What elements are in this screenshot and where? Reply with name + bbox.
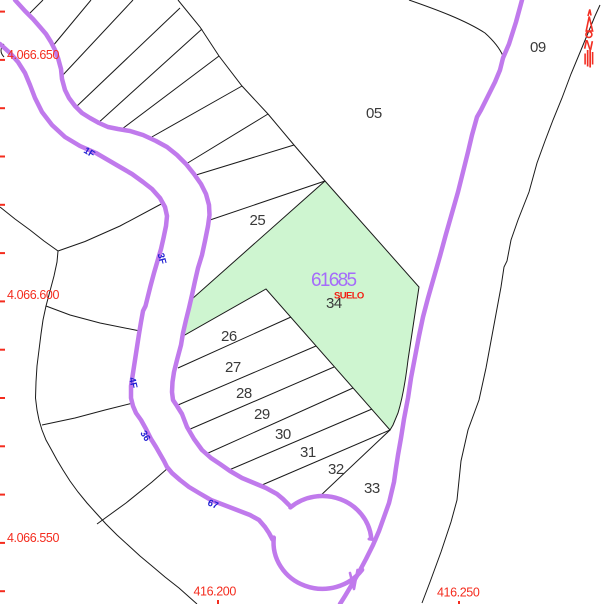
svg-text:4.066.550: 4.066.550 [7,531,59,545]
svg-text:31: 31 [300,444,316,461]
svg-text:61685: 61685 [311,270,356,291]
svg-text:33: 33 [364,480,380,497]
svg-text:26: 26 [221,328,237,345]
svg-text:28: 28 [236,385,252,402]
svg-text:416.250: 416.250 [437,586,480,600]
svg-text:4.066.650: 4.066.650 [7,48,59,62]
svg-text:09: 09 [530,39,546,56]
svg-text:4.066.600: 4.066.600 [7,288,59,302]
svg-text:05: 05 [366,105,382,122]
svg-text:29: 29 [254,406,270,423]
svg-text:30: 30 [275,426,291,443]
svg-text:32: 32 [328,461,344,478]
svg-text:SUELO: SUELO [334,291,364,302]
svg-text:416.200: 416.200 [194,585,237,599]
svg-text:27: 27 [225,359,241,376]
svg-text:25: 25 [250,212,266,229]
